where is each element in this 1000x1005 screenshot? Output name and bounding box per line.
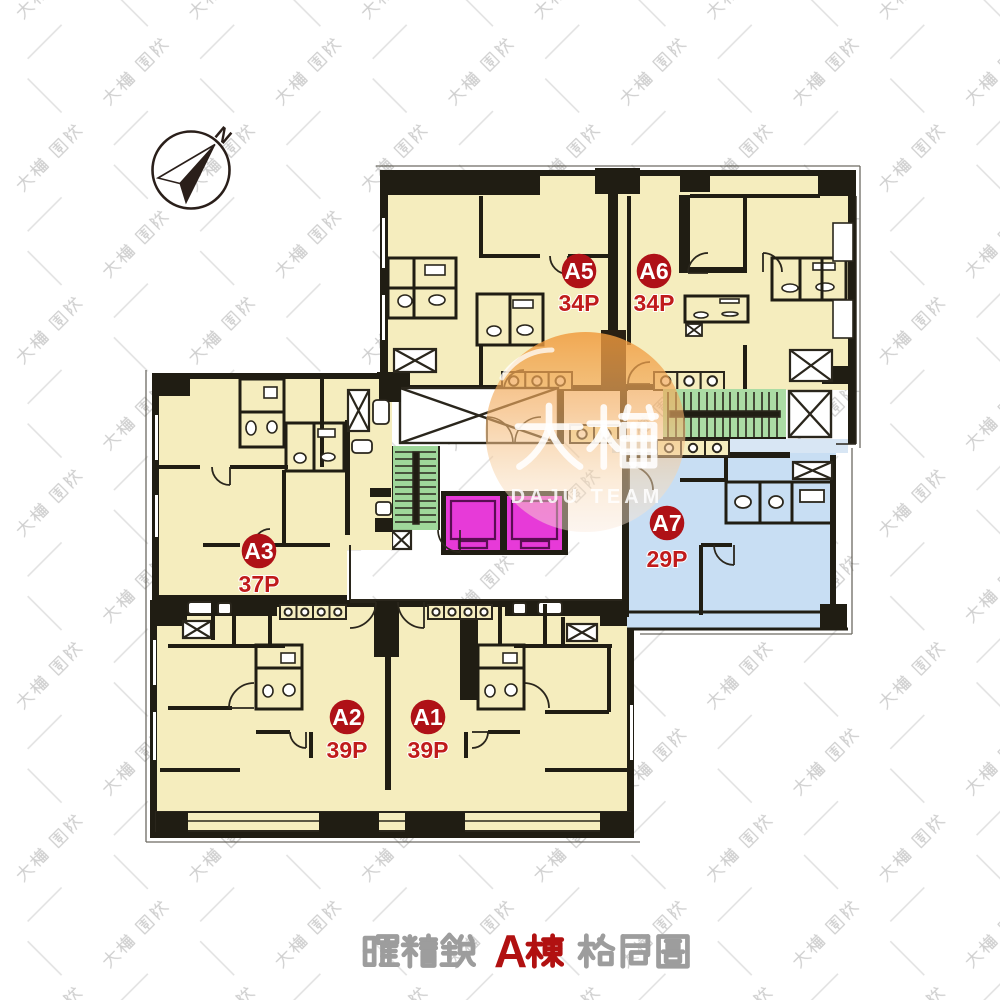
svg-text:A2: A2: [332, 704, 361, 730]
svg-text:37P: 37P: [239, 571, 280, 597]
svg-text:A7: A7: [652, 510, 681, 536]
svg-text:A3: A3: [244, 538, 273, 564]
svg-text:DAJU TEAM: DAJU TEAM: [511, 486, 664, 508]
svg-text:29P: 29P: [647, 546, 688, 572]
svg-text:A1: A1: [413, 704, 443, 730]
svg-text:34P: 34P: [634, 290, 675, 316]
svg-text:A5: A5: [564, 258, 594, 284]
svg-text:A6: A6: [639, 258, 668, 284]
svg-text:39P: 39P: [327, 737, 368, 763]
svg-text:39P: 39P: [408, 737, 449, 763]
svg-text:34P: 34P: [559, 290, 600, 316]
svg-text:A: A: [494, 925, 527, 977]
